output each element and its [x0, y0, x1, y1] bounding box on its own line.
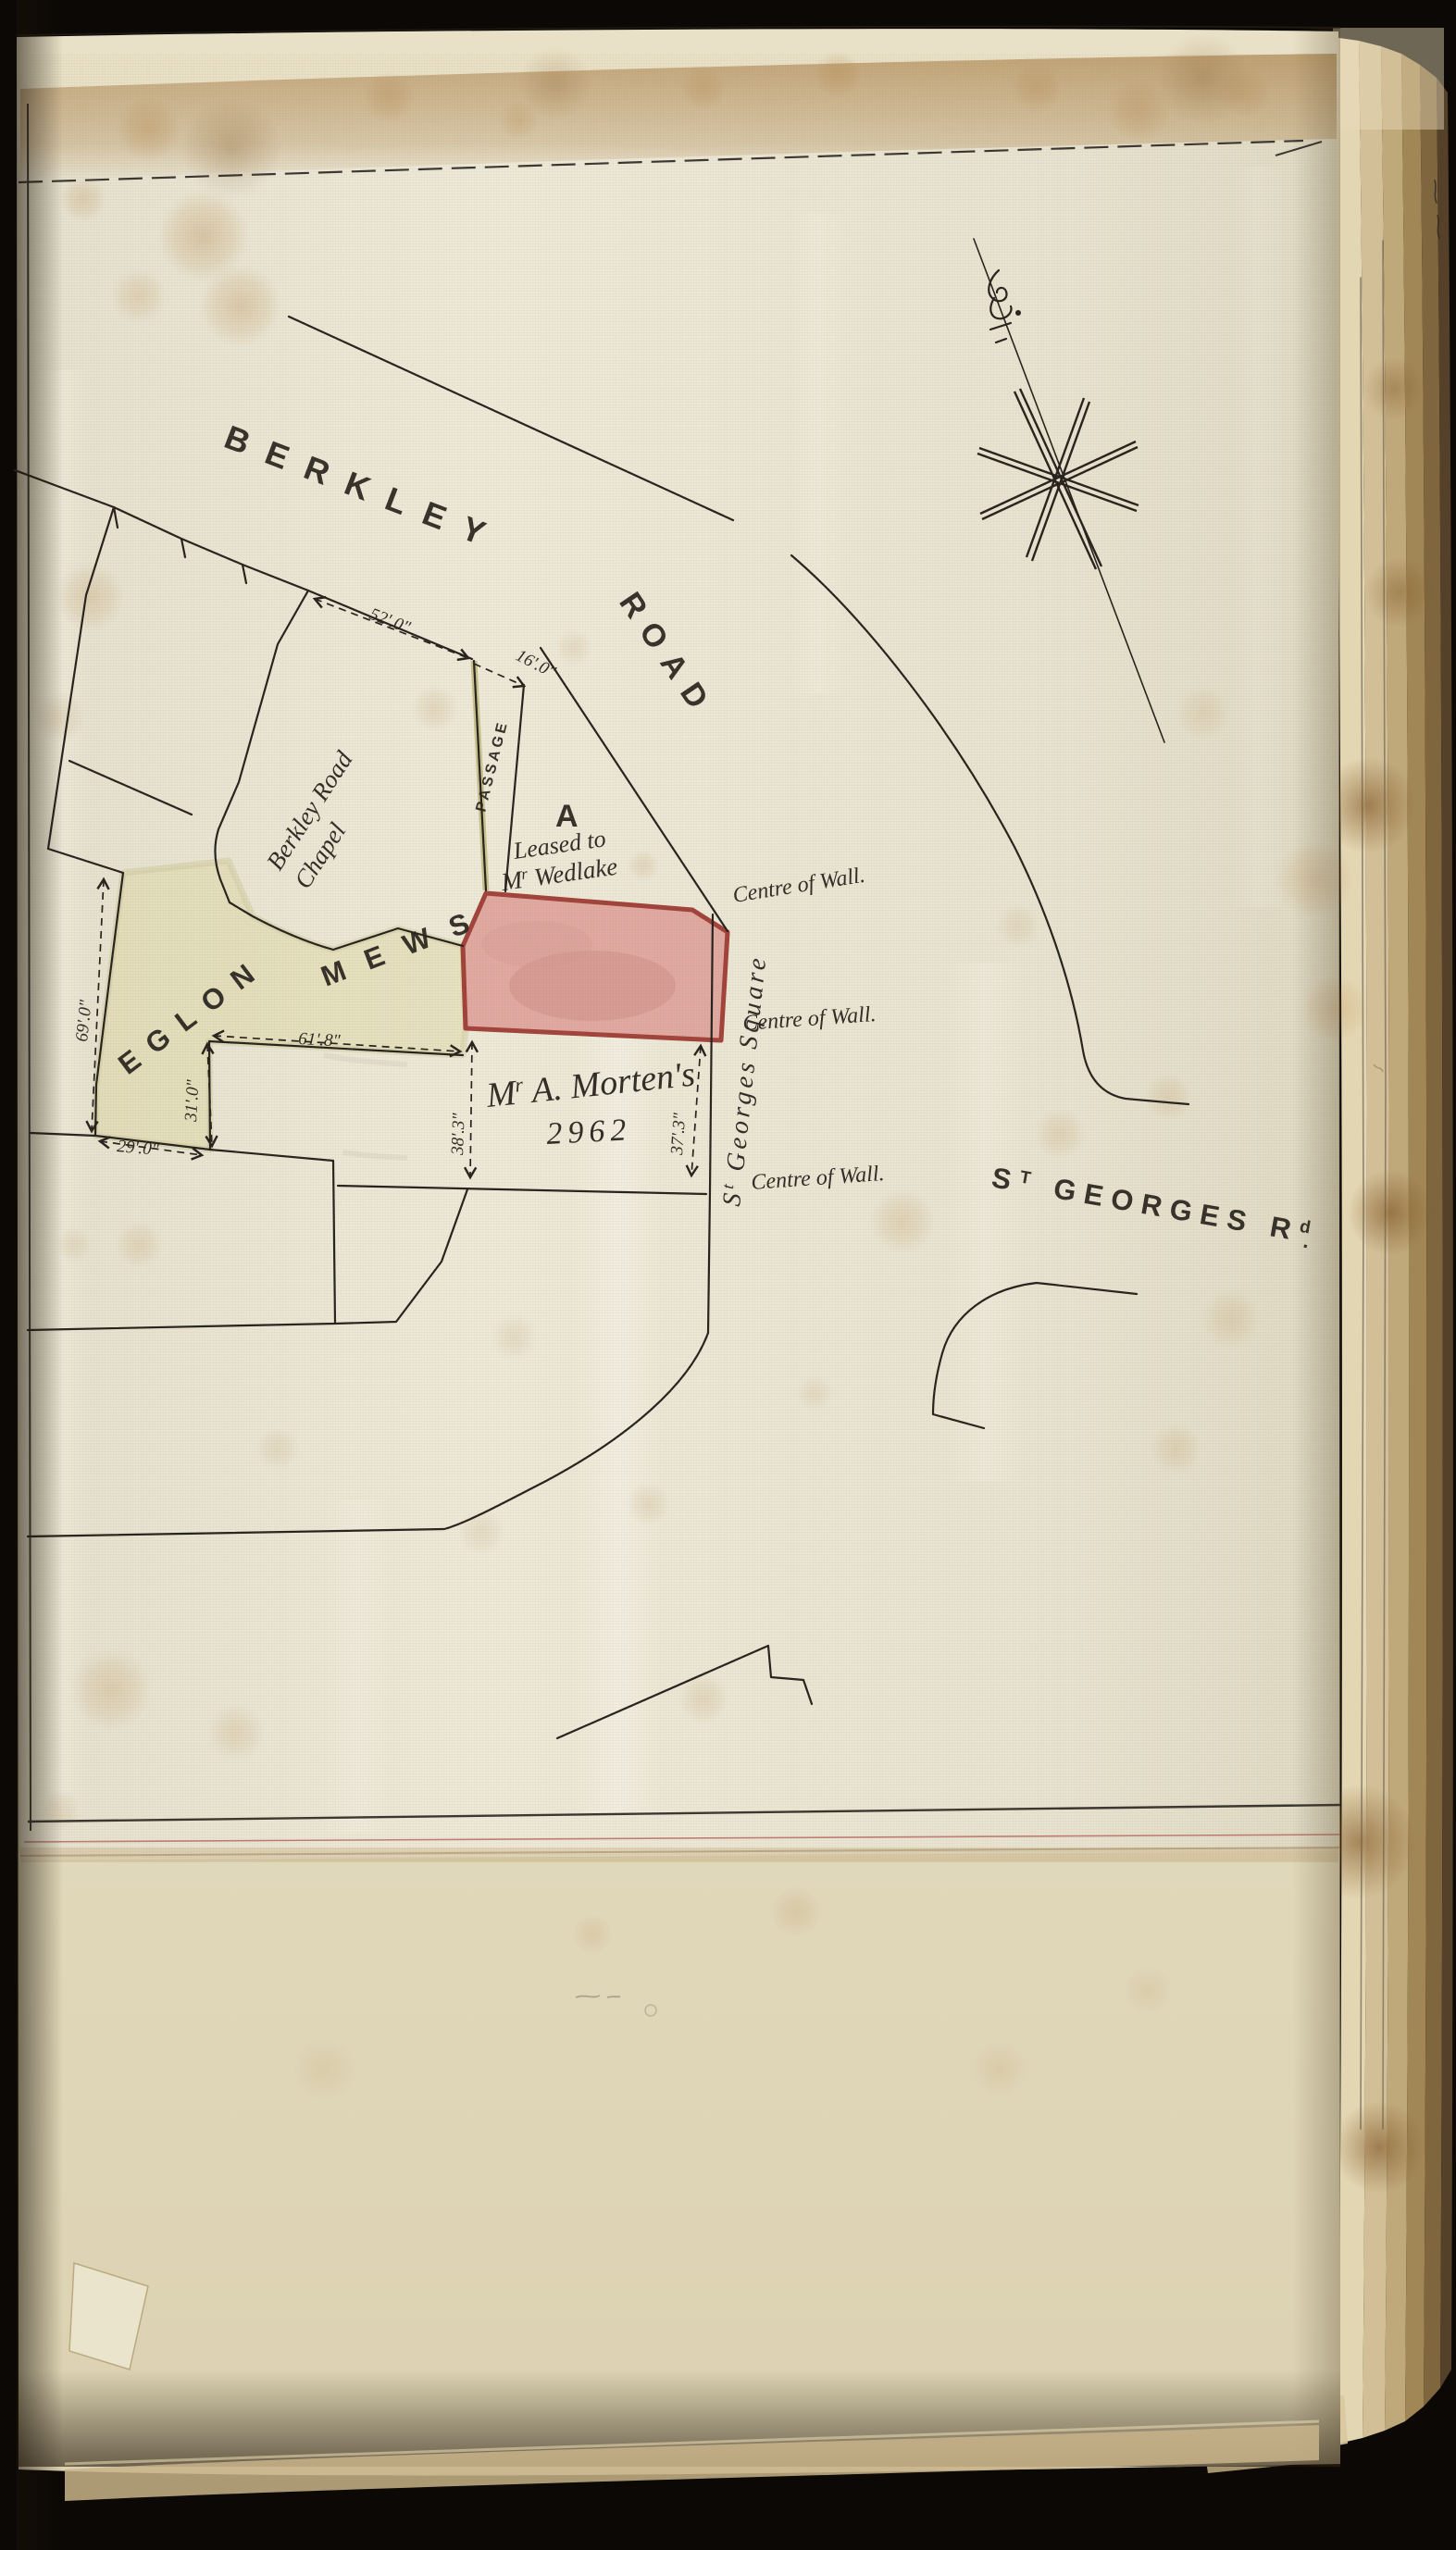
photographed-estate-plan-page: BERKLEY ROAD Berkley Road Chapel PASSAGE… — [0, 0, 1456, 2550]
fore-edge-top-highlight — [1333, 28, 1444, 130]
sgr-s: S — [989, 1161, 1022, 1198]
stain — [1363, 357, 1425, 420]
plot-number: 2962 — [545, 1113, 632, 1151]
dim-notch-top: 61'.8" — [298, 1029, 342, 1051]
dim-mews-south: 29'.0" — [117, 1137, 161, 1160]
stain — [1348, 1170, 1433, 1255]
estate-plan-svg: BERKLEY ROAD Berkley Road Chapel PASSAGE… — [0, 0, 1456, 2550]
dim-morten-west: 38'.3" — [448, 1112, 469, 1156]
dim-notch-side: 31'.0" — [181, 1078, 203, 1123]
stain — [1333, 2101, 1425, 2194]
dim-morten-east: 37'.3" — [667, 1112, 690, 1157]
square-s: S — [717, 1188, 748, 1208]
parcel-blotch — [481, 921, 592, 967]
stain — [1364, 557, 1435, 628]
